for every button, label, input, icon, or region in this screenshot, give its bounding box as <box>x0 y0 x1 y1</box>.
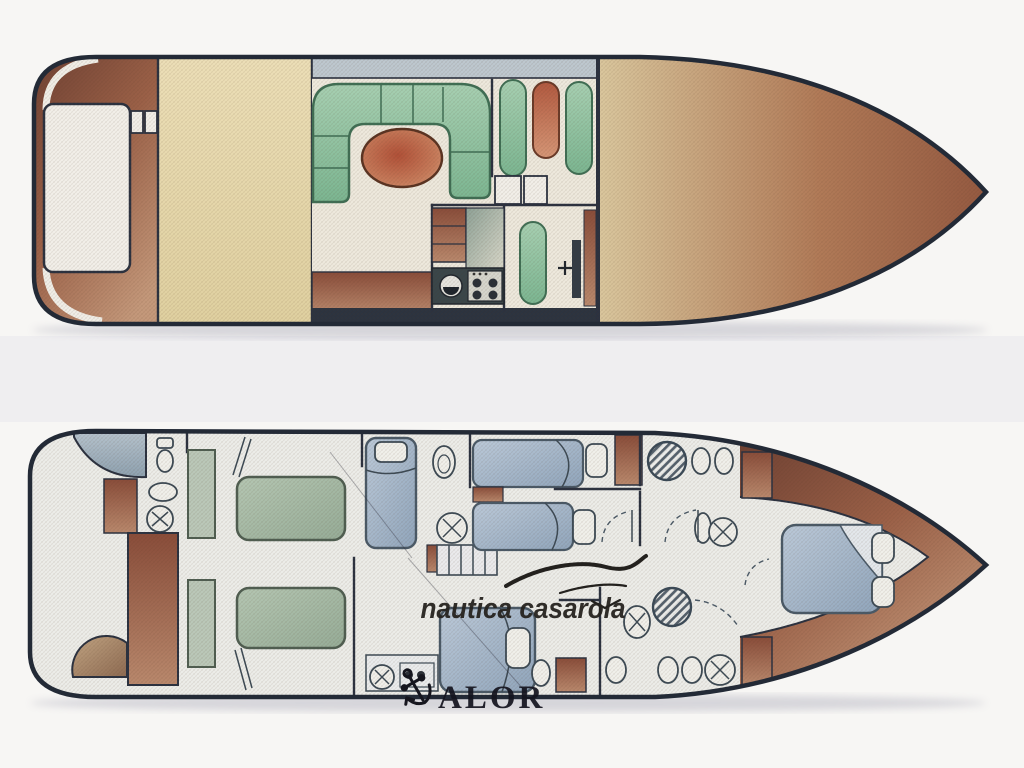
dealer-watermark-text: nautica casarola <box>421 593 626 625</box>
brand-watermark-text: ALOR <box>438 680 545 716</box>
yacht-deck-plans: nautica casarola ALOR <box>0 0 1024 768</box>
scan-tint-band <box>0 336 1024 422</box>
